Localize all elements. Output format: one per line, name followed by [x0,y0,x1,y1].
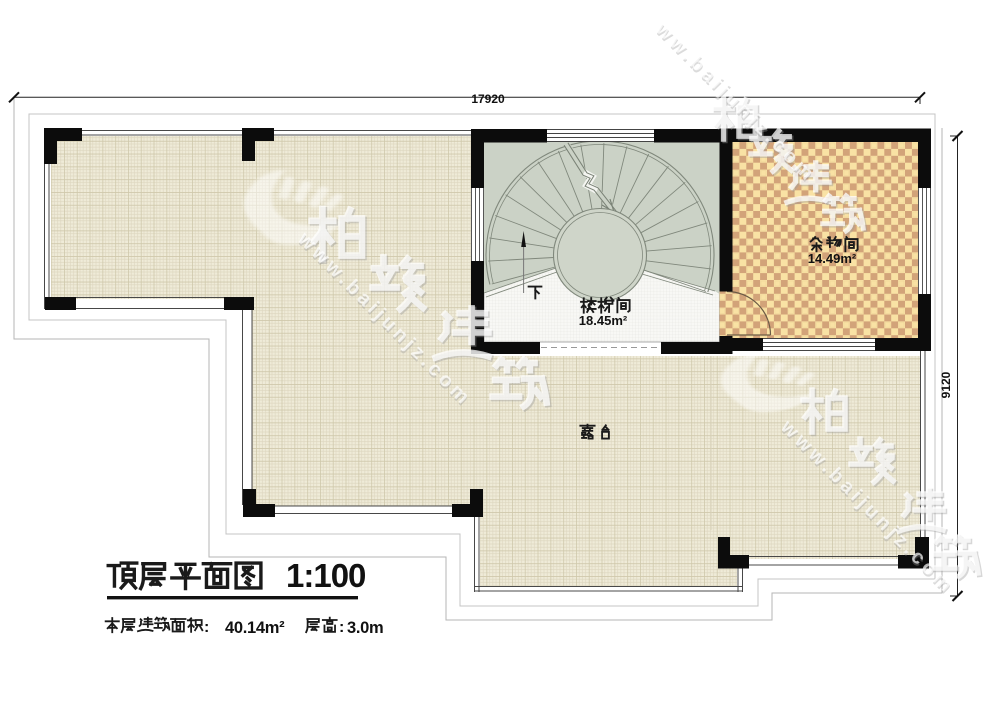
svg-text:3.0m: 3.0m [347,619,383,637]
svg-text::: : [339,619,344,636]
svg-text:40.14m²: 40.14m² [225,619,285,637]
svg-text:9120: 9120 [939,371,953,398]
svg-text:17920: 17920 [471,92,505,106]
svg-text:14.49m²: 14.49m² [808,251,857,266]
svg-text:1:100: 1:100 [286,557,365,594]
svg-text::: : [204,619,209,636]
svg-text:18.45m²: 18.45m² [579,313,628,328]
